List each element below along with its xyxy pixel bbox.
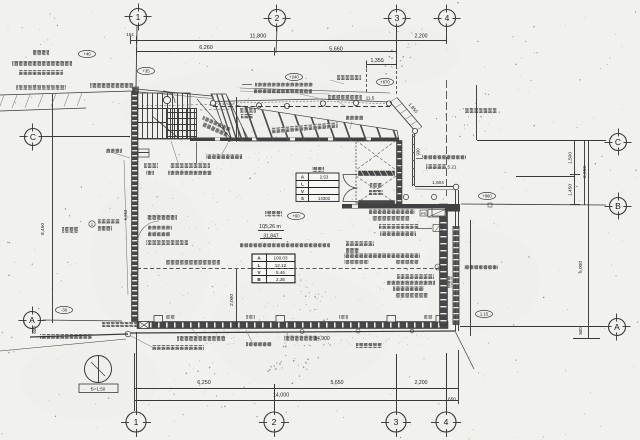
svg-text:12.12: 12.12 xyxy=(275,263,287,268)
svg-text:8,450: 8,450 xyxy=(40,223,46,235)
svg-text:4: 4 xyxy=(445,13,450,23)
svg-text:5,660: 5,660 xyxy=(329,47,343,53)
svg-text:2: 2 xyxy=(272,417,277,427)
svg-text:3: 3 xyxy=(394,417,399,427)
svg-text:C: C xyxy=(615,137,621,147)
svg-text:1: 1 xyxy=(136,12,141,22)
svg-text:L: L xyxy=(301,182,304,187)
svg-text:+40: +40 xyxy=(83,52,91,57)
svg-text:1,500: 1,500 xyxy=(568,152,574,164)
svg-text:L: L xyxy=(258,263,261,268)
svg-text:S: S xyxy=(301,196,304,201)
svg-text:1,604: 1,604 xyxy=(432,180,444,185)
svg-text:1: 1 xyxy=(134,417,139,427)
svg-text:V: V xyxy=(301,189,304,194)
svg-text:154: 154 xyxy=(126,32,134,37)
svg-text:1,350: 1,350 xyxy=(371,58,384,64)
svg-text:2,959: 2,959 xyxy=(582,166,588,178)
svg-text:1.15: 1.15 xyxy=(480,312,489,317)
svg-text:500: 500 xyxy=(578,327,583,335)
svg-text:+35: +35 xyxy=(142,69,150,74)
svg-text:2,200: 2,200 xyxy=(415,380,428,386)
svg-text:11.5: 11.5 xyxy=(366,96,375,101)
svg-text:105,26 m: 105,26 m xyxy=(259,224,281,230)
svg-text:2.53: 2.53 xyxy=(320,175,329,180)
svg-text:5,650: 5,650 xyxy=(331,380,344,386)
svg-text:6,250: 6,250 xyxy=(197,380,211,386)
svg-text:14,900: 14,900 xyxy=(314,336,330,342)
svg-text:A: A xyxy=(29,315,35,325)
svg-text:2.36: 2.36 xyxy=(276,277,285,282)
svg-text:B: B xyxy=(615,201,621,211)
svg-text:1,450: 1,450 xyxy=(568,184,574,196)
svg-text:+240: +240 xyxy=(289,75,299,80)
svg-text:4: 4 xyxy=(444,417,449,427)
svg-text:5,000: 5,000 xyxy=(578,261,584,273)
svg-text:A: A xyxy=(614,322,620,332)
svg-text:3: 3 xyxy=(395,13,400,23)
svg-text:600: 600 xyxy=(32,326,37,334)
svg-text:+860: +860 xyxy=(482,194,492,199)
svg-text:+670: +670 xyxy=(380,80,390,85)
svg-text:11,800: 11,800 xyxy=(250,34,267,40)
svg-text:S=1:50: S=1:50 xyxy=(91,387,106,392)
svg-text:2,000: 2,000 xyxy=(229,294,235,306)
svg-text:100.03: 100.03 xyxy=(273,256,287,261)
svg-text:14,000: 14,000 xyxy=(273,393,290,399)
svg-text:5.21: 5.21 xyxy=(448,165,457,170)
svg-text:5.46: 5.46 xyxy=(276,270,285,275)
svg-text:930: 930 xyxy=(416,148,421,156)
svg-text:+60: +60 xyxy=(292,214,300,219)
svg-text:6,260: 6,260 xyxy=(199,45,213,51)
svg-text:-30: -30 xyxy=(61,308,68,313)
svg-text:5,953: 5,953 xyxy=(123,209,128,220)
svg-text:C: C xyxy=(30,132,36,142)
svg-text:14302: 14302 xyxy=(318,196,331,201)
svg-text:2,200: 2,200 xyxy=(415,34,428,40)
svg-text:2: 2 xyxy=(275,13,280,23)
